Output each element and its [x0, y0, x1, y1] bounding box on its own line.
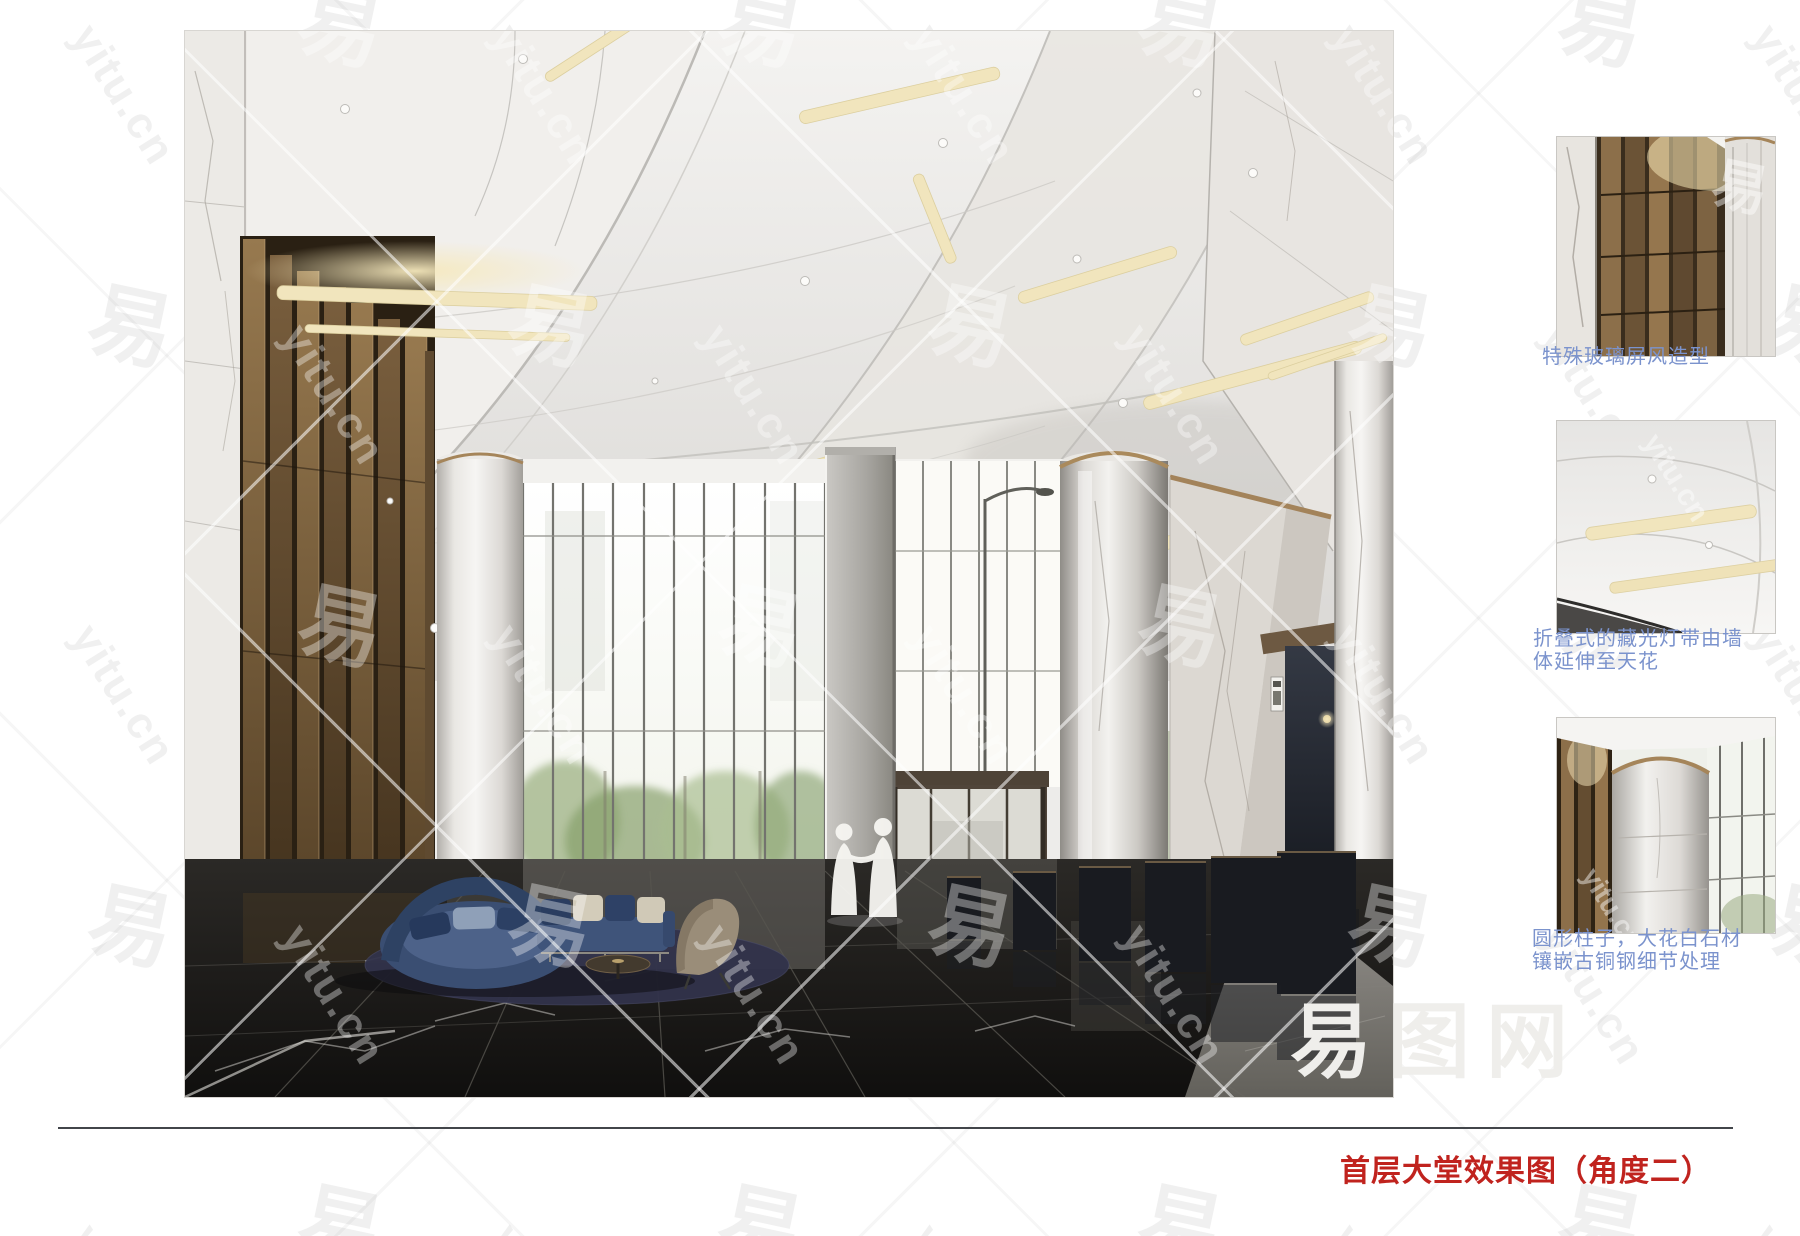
caption-line: 镶嵌古铜钢细节处理	[1532, 951, 1762, 974]
thumbnail-3-caption: 圆形柱子，大花白石材 镶嵌古铜钢细节处理	[1532, 928, 1762, 974]
caption-line: 折叠式的藏光灯带由墙	[1533, 628, 1763, 651]
lobby-rendering-scene	[185, 31, 1393, 1097]
page-title: 首层大堂效果图（角度二）	[1340, 1146, 1712, 1190]
thumbnail-1-image	[1557, 137, 1775, 356]
watermark-site: yitu.cn	[1320, 1216, 1445, 1236]
watermark-site: yitu.cn	[1740, 1216, 1800, 1236]
watermark-glyph: 易	[78, 253, 185, 389]
left-marble-wall	[185, 31, 247, 911]
watermark-glyph: 易	[78, 853, 185, 989]
detail-thumbnail-light-strip: yitu.cn	[1557, 421, 1775, 633]
thumbnail-1-caption: 特殊玻璃屏风造型	[1517, 346, 1735, 369]
caption-line: 特殊玻璃屏风造型	[1542, 346, 1710, 368]
caption-line: 圆形柱子，大花白石材	[1532, 928, 1762, 951]
thumbnail-3-image	[1557, 718, 1775, 933]
watermark-site: yitu.cn	[480, 1216, 605, 1236]
site-brand-watermark: 易图网	[1290, 1002, 1584, 1084]
watermark-site: yitu.cn	[60, 616, 185, 775]
entrance-glazing	[895, 461, 1063, 787]
lobby-rendering-image: 易yitu.cn易yitu.cn易yitu.cn易yitu.cn易yitu.cn…	[185, 31, 1393, 1097]
detail-thumbnail-glass-screen: 易	[1557, 137, 1775, 356]
watermark-site: yitu.cn	[60, 16, 185, 175]
thumbnail-2-caption: 折叠式的藏光灯带由墙 体延伸至天花	[1533, 628, 1763, 674]
watermark-site: yitu.cn	[900, 1216, 1025, 1236]
watermark-glyph: 易	[1548, 0, 1655, 88]
watermark-site: yitu.cn	[60, 1216, 185, 1236]
watermark-glyph: 易	[1128, 1153, 1235, 1236]
left-round-column	[430, 451, 530, 902]
far-right-column	[1335, 361, 1393, 921]
caption-line: 体延伸至天花	[1533, 651, 1763, 674]
thumbnail-2-image	[1557, 421, 1775, 633]
detail-thumbnail-round-column: yitu.cn	[1557, 718, 1775, 933]
presentation-page: 易yitu.cn易yitu.cn易yitu.cn易yitu.cn易yitu.cn…	[0, 0, 1800, 1236]
watermark-glyph: 易	[708, 1153, 815, 1236]
watermark-glyph: 易	[288, 1153, 395, 1236]
footer-divider	[58, 1127, 1733, 1129]
